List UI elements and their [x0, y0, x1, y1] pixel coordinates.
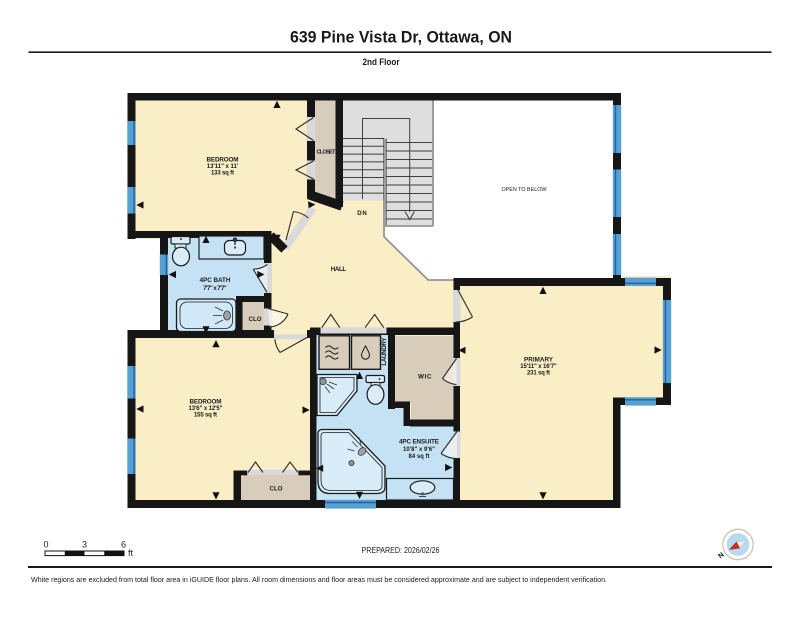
svg-text:White regions are excluded fro: White regions are excluded from total fl… [31, 575, 607, 584]
svg-text:PREPARED: 2026/02/26: PREPARED: 2026/02/26 [362, 545, 440, 555]
svg-text:LAUNDRY: LAUNDRY [381, 337, 388, 366]
svg-text:10'8" x 9'6": 10'8" x 9'6" [403, 447, 435, 453]
svg-text:CLO: CLO [249, 316, 262, 323]
svg-text:N: N [717, 552, 725, 561]
svg-text:HALL: HALL [331, 266, 347, 273]
svg-text:2nd Floor: 2nd Floor [363, 57, 401, 67]
svg-text:BEDROOM: BEDROOM [190, 399, 222, 406]
svg-text:639 Pine Vista Dr, Ottawa, ON: 639 Pine Vista Dr, Ottawa, ON [290, 29, 512, 47]
svg-text:13'11" x 11': 13'11" x 11' [207, 164, 239, 170]
svg-text:231 sq ft: 231 sq ft [527, 371, 550, 377]
svg-text:13'6" x 12'5": 13'6" x 12'5" [189, 406, 223, 412]
svg-text:84 sq ft: 84 sq ft [409, 454, 430, 460]
svg-text:BEDROOM: BEDROOM [207, 157, 239, 164]
svg-text:4PC ENSUITE: 4PC ENSUITE [399, 439, 439, 446]
svg-text:CLOSET: CLOSET [317, 150, 337, 156]
svg-text:155 sq ft: 155 sq ft [194, 413, 217, 419]
svg-text:7'7" x 7'7": 7'7" x 7'7" [203, 286, 227, 292]
svg-text:WIC: WIC [418, 374, 432, 381]
svg-text:4PC BATH: 4PC BATH [200, 277, 231, 284]
svg-text:ft: ft [128, 548, 134, 558]
svg-text:15'11" x 16'7": 15'11" x 16'7" [520, 364, 557, 370]
svg-text:OPEN TO BELOW: OPEN TO BELOW [501, 187, 547, 193]
svg-text:CLO: CLO [270, 486, 283, 493]
svg-text:DN: DN [357, 210, 367, 217]
svg-text:133 sq ft: 133 sq ft [211, 171, 234, 177]
svg-text:3: 3 [82, 540, 87, 550]
svg-text:0: 0 [43, 540, 48, 550]
svg-text:PRIMARY: PRIMARY [524, 357, 554, 364]
svg-text:6: 6 [121, 540, 126, 550]
